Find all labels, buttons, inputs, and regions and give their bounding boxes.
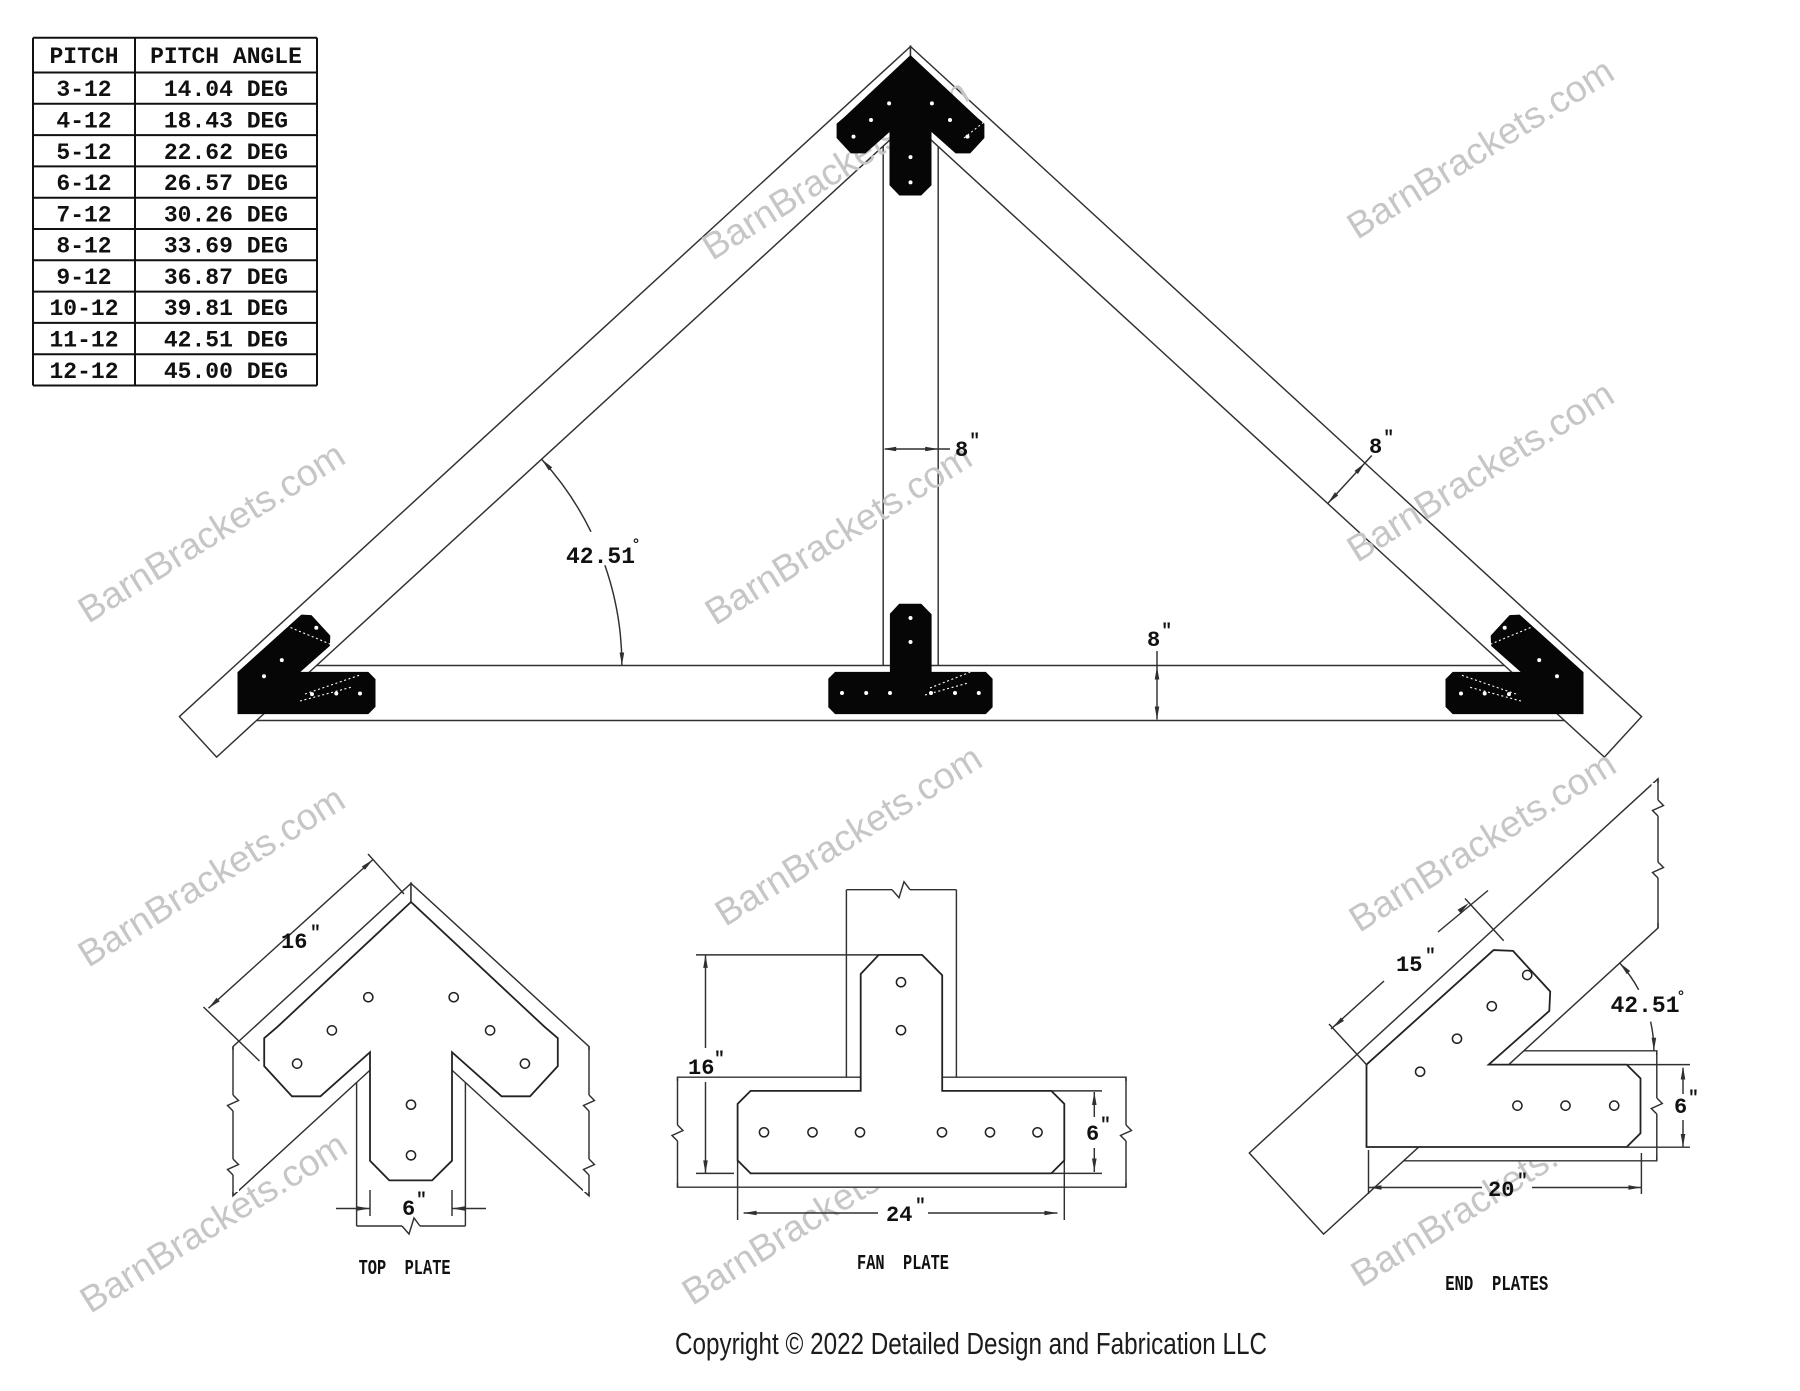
svg-text:8: 8 bbox=[955, 438, 968, 463]
svg-text:11-12: 11-12 bbox=[49, 328, 118, 354]
svg-text:24: 24 bbox=[886, 1203, 912, 1228]
svg-text:26.57 DEG: 26.57 DEG bbox=[164, 171, 288, 197]
svg-text:42.51: 42.51 bbox=[566, 544, 635, 570]
svg-text:PITCH: PITCH bbox=[49, 44, 118, 70]
svg-text:45.00 DEG: 45.00 DEG bbox=[164, 359, 288, 385]
svg-text:22.62 DEG: 22.62 DEG bbox=[164, 140, 288, 166]
svg-text:14.04 DEG: 14.04 DEG bbox=[164, 77, 288, 103]
svg-text:6-12: 6-12 bbox=[56, 171, 111, 197]
svg-text:": " bbox=[1425, 947, 1436, 967]
svg-text:PITCH ANGLE: PITCH ANGLE bbox=[150, 44, 302, 70]
svg-text:3-12: 3-12 bbox=[56, 77, 111, 103]
svg-text:7-12: 7-12 bbox=[56, 202, 111, 228]
svg-text:": " bbox=[310, 924, 321, 944]
svg-text:18.43 DEG: 18.43 DEG bbox=[164, 109, 288, 135]
svg-text:39.81 DEG: 39.81 DEG bbox=[164, 296, 288, 322]
svg-text:36.87 DEG: 36.87 DEG bbox=[164, 265, 288, 291]
svg-text:8: 8 bbox=[1147, 628, 1160, 653]
svg-text:12-12: 12-12 bbox=[49, 359, 118, 385]
svg-text:15: 15 bbox=[1396, 953, 1422, 978]
svg-text:42.51: 42.51 bbox=[1610, 993, 1679, 1019]
svg-text:°: ° bbox=[1676, 989, 1685, 1006]
svg-text:": " bbox=[1517, 1172, 1528, 1192]
svg-text:42.51 DEG: 42.51 DEG bbox=[164, 328, 288, 354]
svg-text:": " bbox=[1383, 429, 1394, 449]
svg-text:10-12: 10-12 bbox=[49, 296, 118, 322]
svg-text:20: 20 bbox=[1488, 1178, 1514, 1203]
svg-text:": " bbox=[915, 1197, 926, 1217]
svg-text:": " bbox=[1161, 622, 1172, 642]
svg-text:8-12: 8-12 bbox=[56, 234, 111, 260]
svg-text:16: 16 bbox=[688, 1056, 714, 1081]
svg-text:": " bbox=[1100, 1116, 1111, 1136]
svg-text:6: 6 bbox=[402, 1197, 415, 1222]
svg-text:FAN PLATE: FAN PLATE bbox=[857, 1253, 949, 1276]
svg-text:TOP PLATE: TOP PLATE bbox=[359, 1258, 451, 1281]
svg-text:": " bbox=[416, 1191, 427, 1211]
svg-text:": " bbox=[1688, 1089, 1699, 1109]
svg-text:30.26 DEG: 30.26 DEG bbox=[164, 202, 288, 228]
svg-text:6: 6 bbox=[1086, 1122, 1099, 1147]
svg-text:9-12: 9-12 bbox=[56, 265, 111, 291]
svg-text:°: ° bbox=[631, 537, 640, 554]
svg-text:8: 8 bbox=[1369, 435, 1382, 460]
svg-text:4-12: 4-12 bbox=[56, 109, 111, 135]
svg-text:6: 6 bbox=[1674, 1095, 1687, 1120]
svg-text:": " bbox=[714, 1050, 725, 1070]
svg-text:16: 16 bbox=[281, 930, 307, 955]
svg-text:33.69 DEG: 33.69 DEG bbox=[164, 234, 288, 260]
svg-text:END PLATES: END PLATES bbox=[1445, 1274, 1548, 1297]
svg-text:": " bbox=[969, 432, 980, 452]
svg-text:5-12: 5-12 bbox=[56, 140, 111, 166]
svg-text:Copyright © 2022 Detailed Desi: Copyright © 2022 Detailed Design and Fab… bbox=[675, 1326, 1267, 1361]
